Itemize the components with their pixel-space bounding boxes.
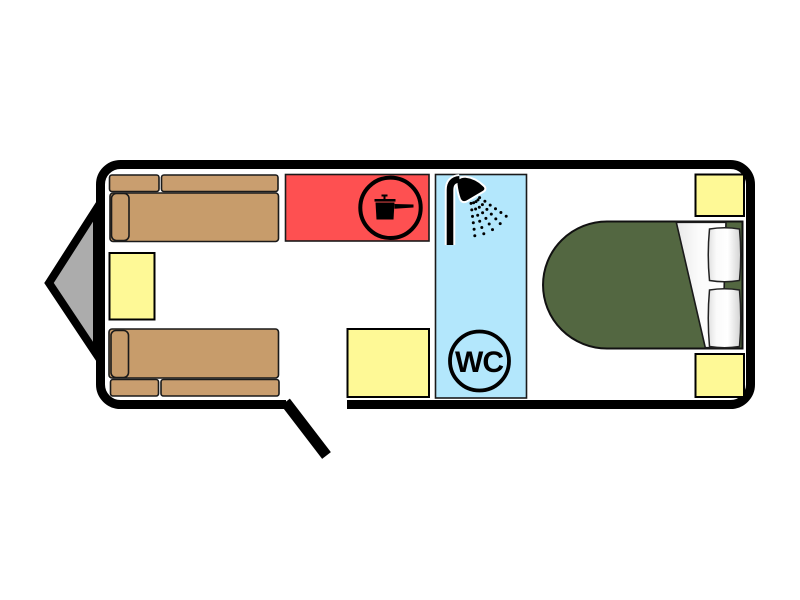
- svg-text:WC: WC: [455, 346, 503, 379]
